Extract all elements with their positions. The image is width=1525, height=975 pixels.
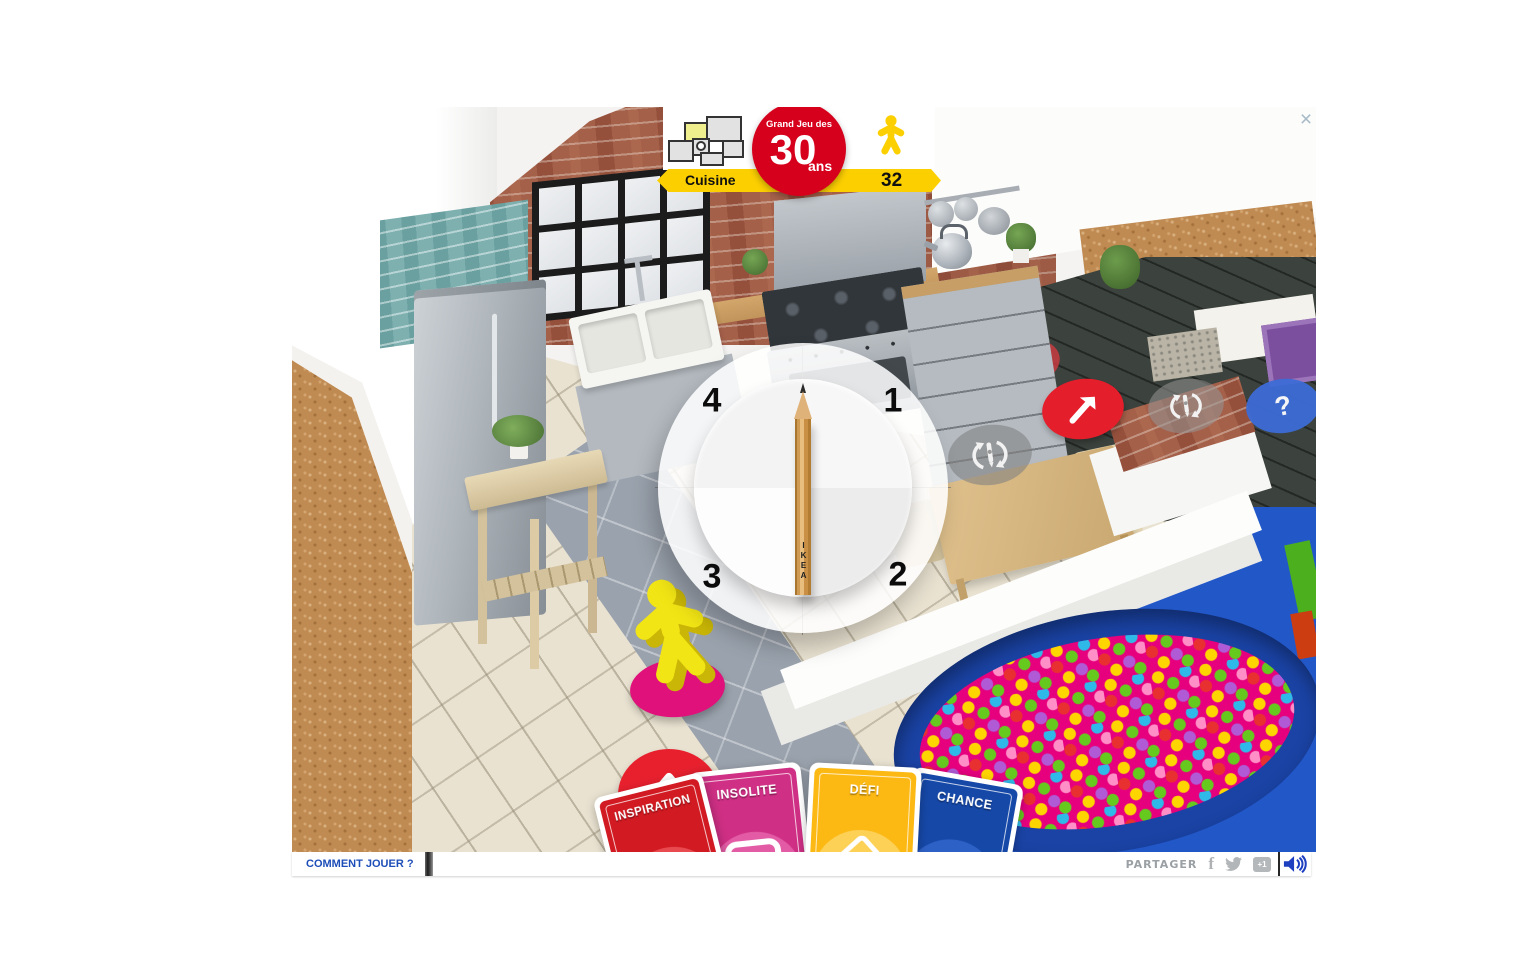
plant	[1100, 245, 1140, 289]
floorplan-minimap-icon	[667, 115, 749, 167]
pencil-wood-cone	[794, 391, 812, 419]
card-defi[interactable]: DÉFI	[802, 762, 922, 852]
google-plus-one-label: +1	[1253, 857, 1271, 872]
facebook-icon[interactable]: f	[1208, 854, 1214, 874]
bottom-bar: COMMENT JOUER ? PARTAGER f +1	[292, 852, 1311, 876]
twitter-icon[interactable]	[1225, 857, 1242, 871]
spinner-number-1: 1	[884, 382, 903, 421]
dice-icon	[830, 833, 892, 852]
spinner-number-3: 3	[703, 558, 722, 597]
speaker-icon[interactable]	[1283, 854, 1307, 877]
badge-suffix: ans	[808, 158, 832, 174]
google-plus-one-icon[interactable]: +1	[1253, 857, 1271, 872]
pencil-brand-label: IKEA	[799, 541, 808, 581]
butcher-table-leg	[478, 489, 487, 644]
question-mark: ?	[1272, 389, 1295, 423]
purple-rug	[1261, 317, 1316, 387]
how-to-play-button[interactable]: COMMENT JOUER ?	[292, 852, 428, 876]
close-button[interactable]: ×	[1293, 106, 1319, 132]
kitchen-game-scene: ? 4 1 3 2 IKEA	[292, 107, 1316, 852]
move-counter: 32	[881, 170, 902, 192]
share-label: PARTAGER	[1126, 858, 1198, 871]
pencil-rotate-icon	[1163, 387, 1209, 425]
spinner-number-4: 4	[703, 382, 722, 421]
pencil-pointer: IKEA	[789, 383, 817, 597]
pencil-body: IKEA	[795, 419, 811, 595]
plant	[742, 249, 768, 275]
fridge-handle	[492, 314, 497, 434]
bar-separator	[1278, 852, 1280, 876]
pencil-rotate-icon	[965, 434, 1016, 476]
current-room-label: Cuisine	[685, 172, 736, 188]
hanging-pot	[954, 197, 978, 221]
header-badge: Cuisine 32 Grand Jeu des 30 ans	[663, 107, 939, 195]
ikea-family-star-icon	[869, 114, 913, 162]
spinner-number-2: 2	[889, 556, 908, 595]
bar-separator	[425, 852, 433, 876]
plant	[1006, 223, 1036, 253]
plant-leaves	[492, 415, 544, 447]
window-pane	[539, 185, 575, 226]
spinner[interactable]: 4 1 3 2 IKEA	[658, 343, 948, 633]
arrow-ne-icon	[1061, 390, 1105, 427]
frame-icon	[724, 837, 785, 852]
butcher-table-leg	[530, 519, 539, 669]
share-group: PARTAGER f +1	[1126, 852, 1271, 876]
gravel-rug	[1147, 327, 1223, 381]
hanging-pan	[978, 207, 1010, 235]
kettle	[932, 233, 972, 269]
